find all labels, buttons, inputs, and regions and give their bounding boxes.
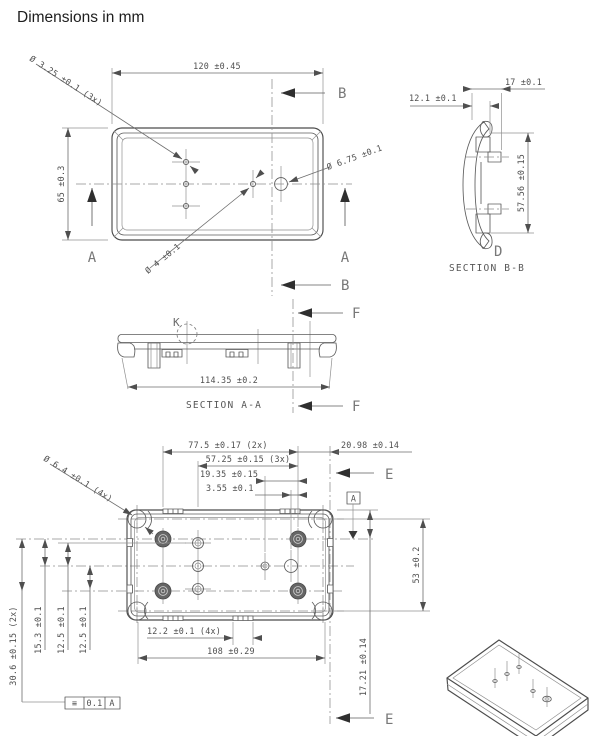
detail-d-label: D bbox=[494, 244, 502, 260]
lid-cross-section bbox=[118, 335, 336, 343]
section-aa-title: SECTION A-A bbox=[186, 400, 262, 411]
page-title: Dimensions in mm bbox=[17, 9, 144, 26]
section-f-label: F bbox=[352, 306, 360, 322]
dim-19-35: 19.35 ±0.15 bbox=[200, 469, 258, 479]
leader-hole-mid: Ø 4 ±0.1 bbox=[143, 241, 182, 275]
section-b-label: B bbox=[338, 86, 346, 102]
dim-width: 120 ±0.45 bbox=[193, 61, 241, 71]
dim-77-5: 77.5 ±0.17 (2x) bbox=[188, 440, 267, 450]
section-aa-view: K 114.35 ±0.2 SECTION A-A F F bbox=[118, 299, 361, 415]
leader-corner-hole: Ø 6.4 ±0.1 (4x) bbox=[42, 453, 115, 504]
datum-triangle bbox=[349, 531, 358, 539]
dim-20-98: 20.98 ±0.14 bbox=[341, 440, 399, 450]
edge-clips bbox=[127, 509, 333, 621]
dim-3-55: 3.55 ±0.1 bbox=[206, 483, 254, 493]
section-a-label: A bbox=[88, 250, 97, 266]
dim-height: 65 ±0.3 bbox=[56, 165, 66, 202]
right-cap bbox=[319, 343, 336, 357]
section-a-label: A bbox=[341, 250, 350, 266]
dim-15-3: 15.3 ±0.1 bbox=[33, 606, 43, 654]
screw-bosses bbox=[155, 531, 306, 599]
corner-ticks bbox=[114, 131, 321, 237]
dim-30-6: 30.6 ±0.15 (2x) bbox=[8, 606, 18, 685]
bottom-view: Ø 6.4 ±0.1 (4x) 77.5 ±0.17 (2x) 20.98 ±0… bbox=[8, 440, 430, 728]
dim-total-width: 17 ±0.1 bbox=[505, 77, 542, 87]
dim-53: 53 ±0.2 bbox=[411, 546, 421, 583]
section-bb-title: SECTION B-B bbox=[449, 263, 525, 274]
dim-step: 12.1 ±0.1 bbox=[409, 93, 457, 103]
section-bb-view: 17 ±0.1 12.1 ±0.1 57.56 ±0.15 D SECTION … bbox=[409, 77, 545, 274]
dim-12-2: 12.2 ±0.1 (4x) bbox=[147, 626, 221, 636]
bottom-cap bbox=[480, 233, 492, 249]
fcf-datum: A bbox=[109, 698, 114, 708]
section-f-label: F bbox=[352, 399, 360, 415]
corner-bosses bbox=[128, 510, 332, 620]
leader-hole-small: Ø 3.25 ±0.1 (3x) bbox=[28, 53, 104, 108]
bottom-view-outline bbox=[127, 510, 333, 620]
top-view: 120 ±0.45 65 ±0.3 Ø 3.25 ±0.1 (3x) Ø 4 ±… bbox=[28, 53, 383, 296]
screw-post bbox=[288, 343, 300, 368]
clip-feature bbox=[162, 350, 248, 358]
drawing-page: Dimensions in mm 120 ±0.45 65 ±0.3 Ø bbox=[0, 0, 600, 736]
dim-57-25: 57.25 ±0.15 (3x) bbox=[206, 454, 291, 464]
left-cap bbox=[118, 343, 135, 357]
dim-section-height: 57.56 ±0.15 bbox=[516, 154, 526, 212]
detail-k-label: K bbox=[173, 316, 180, 329]
fcf-symbol: ≡ bbox=[72, 698, 77, 708]
leader-hole-big: Ø 6.75 ±0.1 bbox=[325, 143, 383, 172]
technical-drawing: Dimensions in mm 120 ±0.45 65 ±0.3 Ø bbox=[0, 0, 600, 736]
datum-label: A bbox=[351, 494, 356, 504]
screw-post bbox=[148, 343, 160, 368]
iso-top-face bbox=[447, 640, 588, 736]
section-e-label: E bbox=[385, 467, 393, 483]
dim-17-21: 17.21 ±0.14 bbox=[358, 638, 368, 696]
iso-holes bbox=[493, 654, 552, 707]
dim-12-5-a: 12.5 ±0.1 bbox=[56, 606, 66, 654]
fcf-tolerance: 0.1 bbox=[87, 698, 103, 708]
section-e-label: E bbox=[385, 712, 393, 728]
feature-control-frame: ≡ 0.1 A bbox=[22, 697, 120, 709]
dim-108: 108 ±0.29 bbox=[207, 646, 255, 656]
dim-12-5-b: 12.5 ±0.1 bbox=[78, 606, 88, 654]
section-b-label: B bbox=[341, 278, 349, 294]
isometric-view bbox=[447, 640, 588, 736]
dim-section-width: 114.35 ±0.2 bbox=[200, 375, 258, 385]
